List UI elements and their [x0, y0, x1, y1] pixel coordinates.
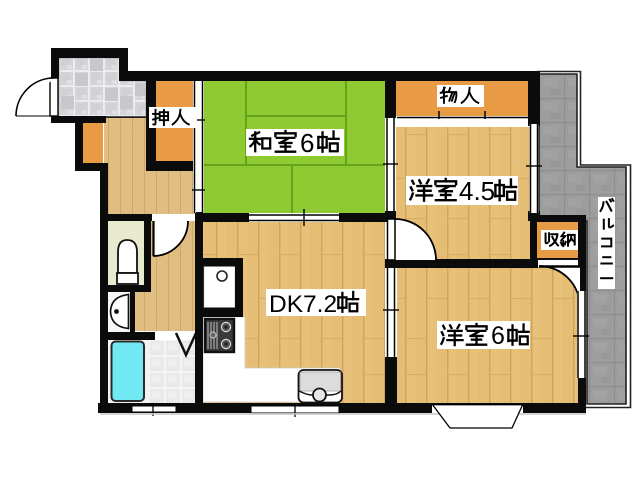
svg-text:DK7.2: DK7.2 [269, 291, 337, 318]
svg-text:6: 6 [300, 128, 314, 158]
svg-text:6: 6 [491, 322, 505, 350]
svg-text:4.5: 4.5 [459, 176, 495, 206]
